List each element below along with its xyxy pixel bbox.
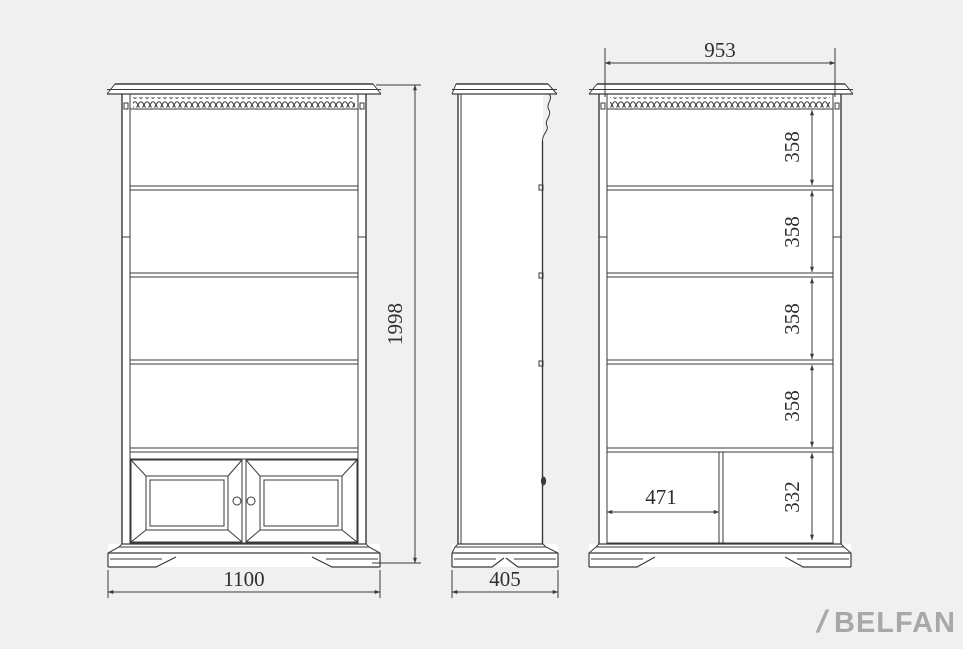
side-knob-profile bbox=[541, 477, 546, 486]
drawing-page: 1998 1100 405 953 358 358 358 358 332 47… bbox=[0, 0, 963, 649]
brand-logo: / BELFAN bbox=[814, 604, 956, 639]
shelf-spacing-label-2: 358 bbox=[780, 216, 804, 248]
section-body-face bbox=[599, 94, 841, 544]
overall-height-label: 1998 bbox=[383, 303, 407, 345]
shelf-spacing-label-1: 358 bbox=[780, 131, 804, 163]
bottom-height-label: 332 bbox=[780, 481, 804, 513]
inner-width-label: 953 bbox=[704, 38, 736, 62]
section-view bbox=[589, 84, 853, 567]
shelf-spacing-label-3: 358 bbox=[780, 303, 804, 335]
section-fretwork-band bbox=[610, 98, 830, 108]
bottom-compartment-width-label: 471 bbox=[645, 485, 677, 509]
technical-drawing: 1998 1100 405 953 358 358 358 358 332 47… bbox=[0, 0, 963, 649]
side-body-face bbox=[458, 94, 543, 544]
side-view bbox=[452, 84, 558, 567]
depth-label: 405 bbox=[489, 567, 521, 591]
logo-wordmark: BELFAN bbox=[834, 607, 956, 639]
front-view bbox=[107, 84, 381, 567]
right-door-knob bbox=[247, 497, 255, 505]
left-door-knob bbox=[233, 497, 241, 505]
overall-width-label: 1100 bbox=[223, 567, 264, 591]
front-fretwork-band bbox=[133, 98, 355, 108]
shelf-spacing-label-4: 358 bbox=[780, 390, 804, 422]
